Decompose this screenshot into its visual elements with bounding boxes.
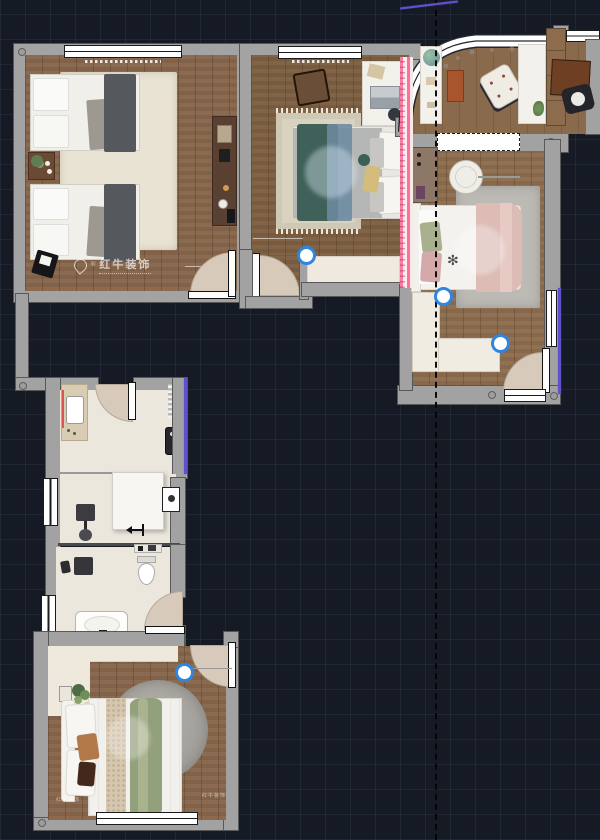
button (497, 94, 501, 98)
desk-chair[interactable] (76, 504, 96, 542)
appliance-dot (168, 495, 175, 502)
flower-deco-icon: ✻ (447, 252, 459, 269)
laptop (370, 86, 400, 109)
window-n[interactable] (278, 46, 362, 59)
hatch-ticks (400, 57, 405, 288)
reg-mark: ® (91, 262, 95, 268)
blue-handle-corridor-corner-1[interactable] (434, 287, 453, 306)
black-item (227, 209, 235, 223)
plant-icon (533, 101, 544, 116)
floor-line (253, 238, 303, 239)
bedside-table[interactable] (28, 152, 55, 180)
tan-pillow (76, 733, 99, 762)
dark-blanket (104, 74, 136, 152)
window-s[interactable] (96, 812, 198, 825)
stool[interactable] (60, 560, 71, 573)
bull-logo-icon (71, 256, 89, 274)
single-bed-2[interactable] (30, 184, 140, 260)
pillow (33, 78, 69, 111)
pillow (33, 188, 69, 220)
wall-seg (413, 60, 420, 132)
knob (417, 153, 421, 157)
wall-seg (518, 132, 568, 152)
paper (39, 255, 52, 267)
shelf-item (148, 545, 156, 551)
vanity-table[interactable] (74, 557, 93, 575)
button (502, 74, 506, 78)
purple-guide-line (400, 0, 458, 9)
double-bed-e[interactable]: ✻ (411, 203, 522, 292)
wood-chair[interactable] (292, 68, 330, 106)
teal-cushion (358, 154, 370, 166)
long-desk[interactable] (518, 44, 546, 124)
blue-handle-corridor-corner-2[interactable] (491, 334, 510, 353)
kettle (218, 199, 228, 209)
tap-dot (73, 432, 76, 435)
sheen (106, 716, 150, 760)
brown-rug[interactable] (447, 70, 464, 102)
exterior-wall (16, 294, 28, 390)
black-box (219, 149, 230, 162)
purple-guide-line (558, 288, 561, 394)
corner-watermark: 红牛装饰 (56, 796, 80, 803)
purple-guide-line (184, 378, 187, 474)
bathroom-wall-right (171, 545, 185, 597)
single-bed-1[interactable] (30, 74, 140, 151)
blue-handle-door-n-bedroom[interactable] (297, 246, 316, 265)
bedroom-s-door-leaf[interactable] (228, 642, 236, 688)
shelf-item (138, 546, 143, 551)
gray-pillow (370, 138, 384, 168)
wall-bolt (550, 392, 558, 400)
side-desk[interactable] (420, 46, 442, 124)
cushion (570, 91, 587, 108)
dark-blanket (104, 184, 136, 261)
chair-inner (455, 166, 477, 188)
counter-with-sink[interactable] (61, 384, 88, 441)
sage-pillow (419, 221, 442, 253)
floor-lamp-arm[interactable] (478, 176, 520, 178)
section-dashed-line (435, 0, 437, 840)
brand-watermark: ® 红牛装饰 (74, 256, 151, 274)
knob (417, 162, 421, 166)
pillow (33, 115, 69, 148)
toilet-bowl (138, 563, 155, 585)
door-leaf-nw[interactable] (228, 250, 236, 297)
shower-box[interactable] (112, 472, 164, 530)
toilet[interactable] (137, 556, 156, 586)
note-pad (367, 63, 386, 79)
brown-pillow (77, 761, 96, 786)
purple-item (416, 186, 425, 199)
red-guide-line (62, 390, 64, 428)
rug-fringe (276, 229, 361, 234)
cup (45, 161, 50, 166)
button (509, 87, 513, 91)
wall-seg (400, 285, 412, 390)
blue-handle-door-s-bedroom[interactable] (175, 663, 194, 682)
window-e[interactable] (546, 290, 557, 347)
bay-floor (307, 256, 400, 283)
kitchen-door-leaf[interactable] (128, 382, 136, 420)
dashed-opening (437, 133, 520, 151)
window-utility[interactable] (43, 478, 58, 526)
chair-base (79, 529, 92, 541)
globe-icon (423, 49, 440, 66)
button (489, 81, 493, 85)
toilet-tank (137, 556, 156, 563)
cup (47, 169, 52, 174)
wall-appliance[interactable] (162, 487, 180, 512)
rug-fringe (276, 108, 361, 113)
door-direction-arrow-icon (126, 524, 146, 536)
wall-bolt (488, 391, 496, 399)
window-e-bottom[interactable] (504, 389, 546, 402)
curtain-rail (85, 60, 161, 63)
floorplan-canvas[interactable]: ® 红牛装饰 (0, 0, 600, 840)
sink (66, 396, 84, 424)
wall-bolt (18, 48, 26, 56)
window-nw[interactable] (64, 45, 182, 58)
curtain-rail (292, 60, 349, 63)
tv-cabinet[interactable] (212, 116, 237, 226)
pink-pillow (420, 251, 442, 282)
brand-text: 红牛装饰 (99, 256, 151, 274)
bay-wall (302, 283, 408, 296)
wall-bolt (19, 382, 27, 390)
corner-watermark: 红牛装饰 (202, 792, 226, 799)
pink-wardrobe-strip[interactable] (400, 57, 413, 288)
sheen (305, 146, 357, 198)
bedroom-s-wall-left (34, 632, 48, 830)
door-leaf-n[interactable] (252, 253, 260, 298)
sage-stripe (138, 698, 148, 816)
tap-dot (67, 429, 70, 432)
bathroom-door-leaf[interactable] (145, 626, 185, 634)
orange-dot (223, 185, 229, 191)
sheen (455, 225, 505, 275)
double-bed-n[interactable] (293, 124, 410, 221)
plant-icon (31, 155, 43, 167)
chair-back (76, 504, 95, 521)
photo-frame (217, 125, 232, 143)
entry-door-leaf[interactable] (542, 348, 550, 393)
wall-bolt (38, 819, 46, 827)
